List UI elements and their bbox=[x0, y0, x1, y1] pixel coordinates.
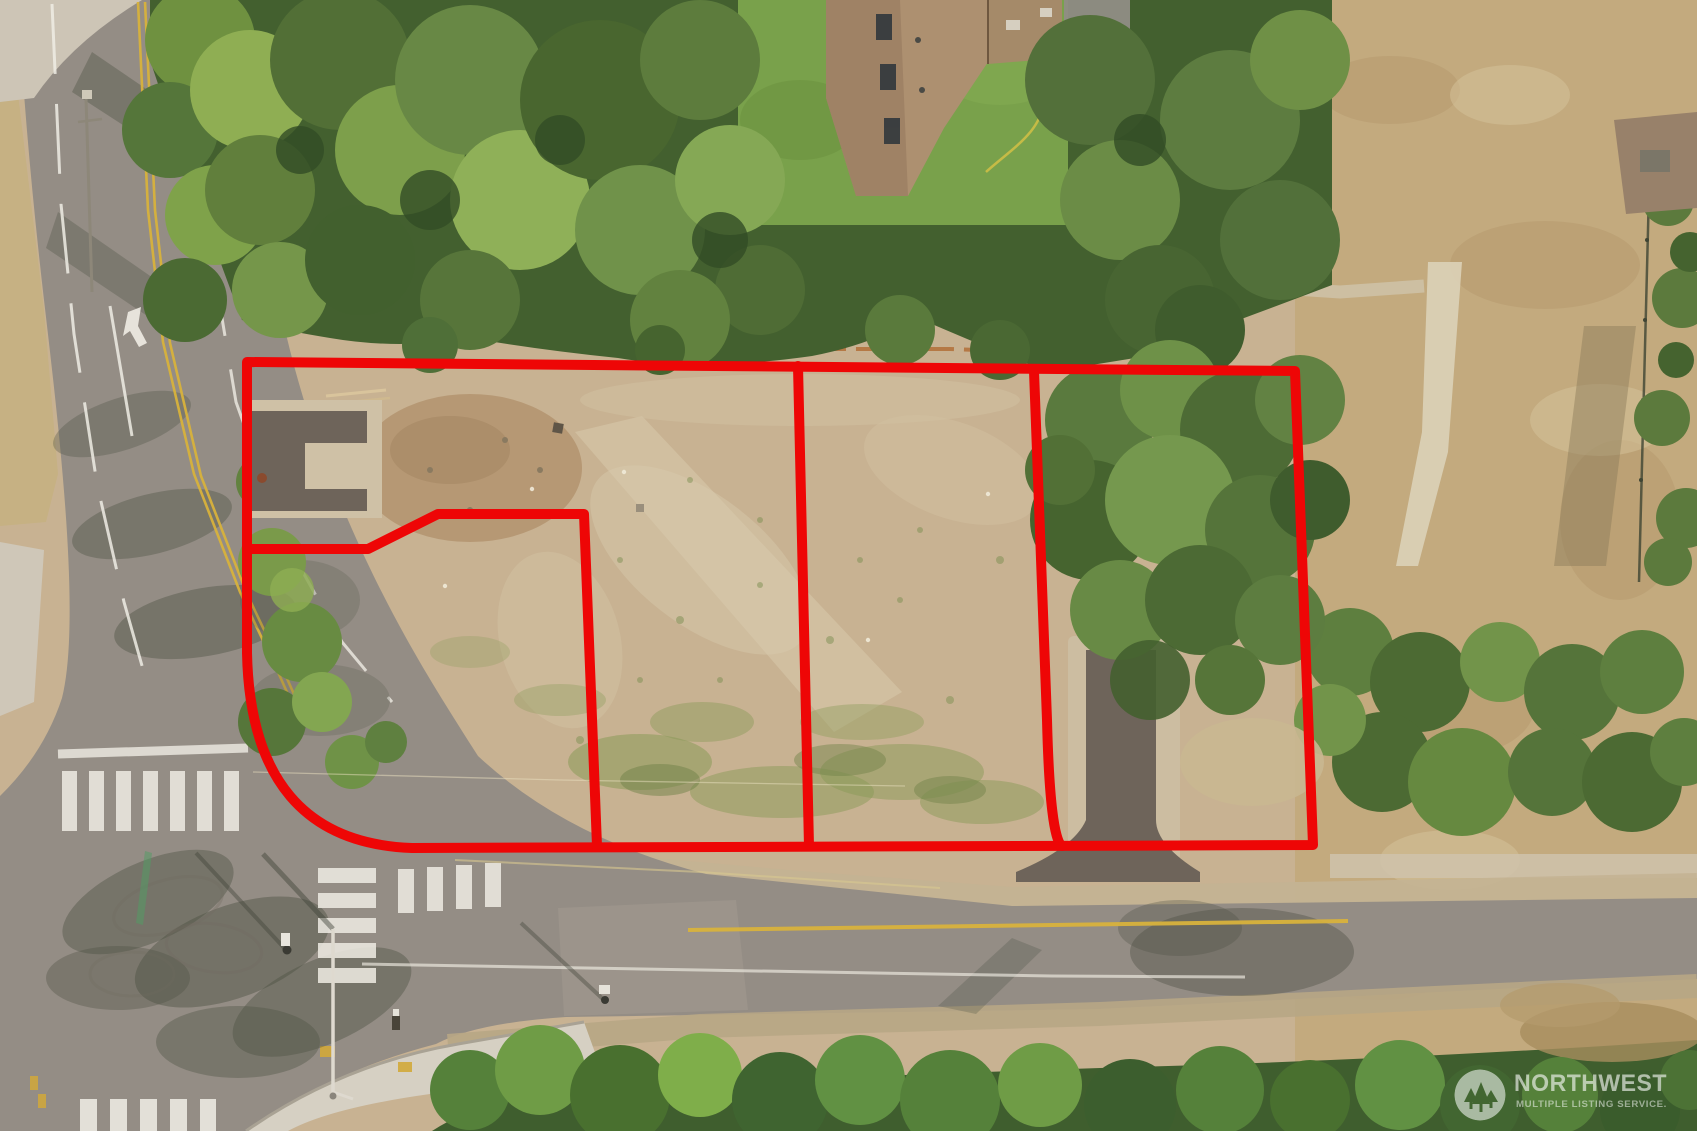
ada-ramp-pad bbox=[398, 1062, 412, 1072]
pedestrian-pole bbox=[392, 1016, 400, 1030]
far-house-roof bbox=[1614, 112, 1697, 214]
nwmls-logo-icon bbox=[1455, 1070, 1506, 1121]
aerial-photo: NORTHWEST MULTIPLE LISTING SERVICE. bbox=[0, 0, 1697, 1131]
signal-pole bbox=[283, 946, 292, 955]
watermark-tagline: MULTIPLE LISTING SERVICE. bbox=[1516, 1099, 1667, 1109]
stop-bar bbox=[58, 748, 248, 754]
aerial-photo-stage: NORTHWEST MULTIPLE LISTING SERVICE. bbox=[0, 0, 1697, 1131]
debris-object bbox=[552, 422, 564, 434]
watermark-brand: NORTHWEST bbox=[1514, 1070, 1667, 1097]
driveway-left-lot bbox=[247, 400, 382, 518]
utility-pole bbox=[601, 996, 609, 1004]
